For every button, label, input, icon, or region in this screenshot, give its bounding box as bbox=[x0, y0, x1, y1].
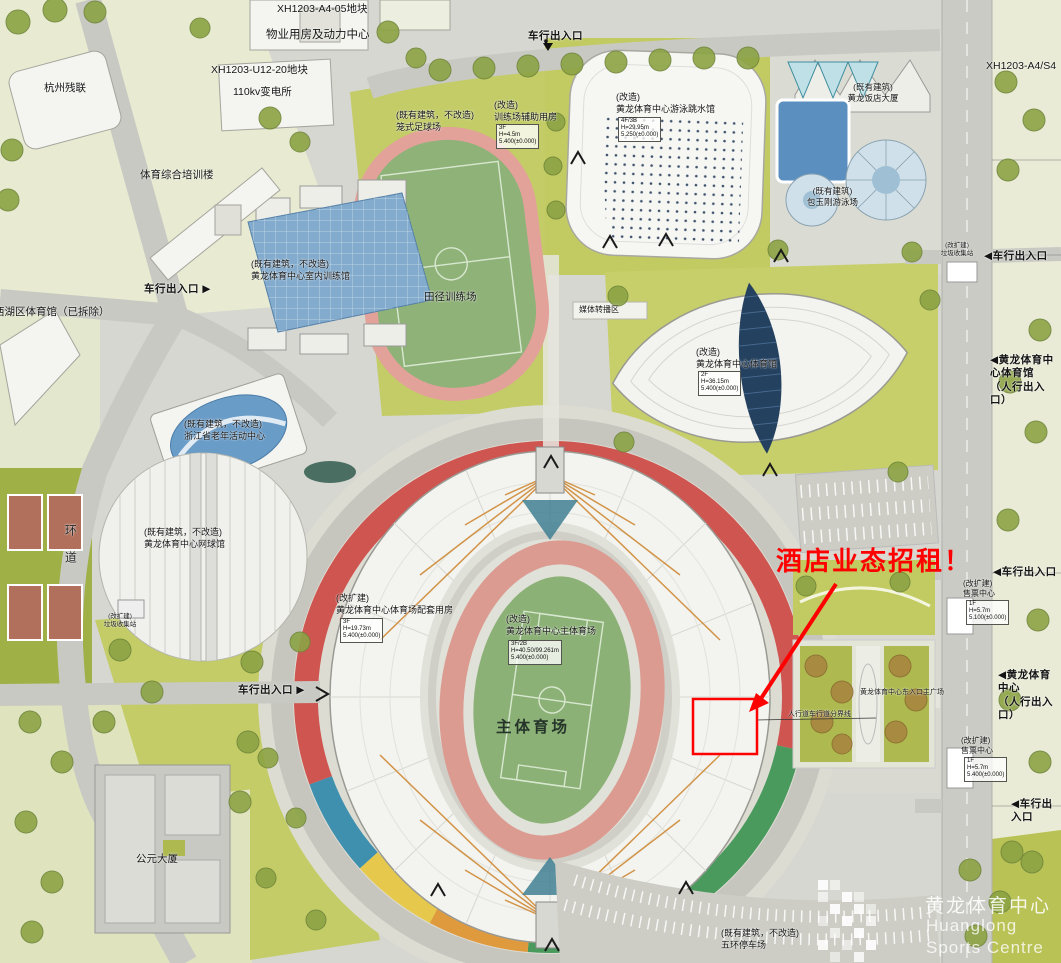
logo-title-en-2: Sports Centre bbox=[926, 938, 1044, 958]
spec-ticket-south: 1F H=5.7m 5.400(±0.000) bbox=[964, 757, 1007, 782]
entrance-vehicle-north: 车行出入口 bbox=[528, 30, 583, 43]
label-stadium-field: 主体育场 bbox=[496, 718, 570, 738]
label-garbage-east: (改扩建) 垃圾收集站 bbox=[933, 242, 981, 259]
entrance-ped-east-plaza: ◀黄龙体育中心 （人行出入口） bbox=[998, 669, 1061, 723]
label-stadium-support: (改扩建) 黄龙体育中心体育场配套用房 bbox=[336, 593, 453, 616]
plot-label-a4-s4: XH1203-A4/S4 bbox=[986, 60, 1056, 73]
label-baoyugang-pool: (既有建筑) 包玉刚游泳场 bbox=[790, 186, 875, 208]
label-ticket-north: (改扩建) 售票中心 bbox=[963, 579, 995, 599]
logo-title-cn: 黄龙体育中心 bbox=[925, 891, 1051, 918]
label-athletics-field: 田径训练场 bbox=[424, 291, 477, 304]
label-swimming-hall: (改造) 黄龙体育中心游泳跳水馆 bbox=[616, 92, 715, 115]
plot-label-u12-20: XH1203-U12-20地块 bbox=[211, 64, 308, 77]
label-hotel-tower: (既有建筑) 黄龙饭店大厦 bbox=[818, 82, 928, 104]
label-tennis-hall: (既有建筑，不改造) 黄龙体育中心网球馆 bbox=[144, 527, 225, 550]
entrance-ped-east-gym: ◀黄龙体育中心体育馆 （人行出入口） bbox=[990, 354, 1061, 408]
logo-title-en-1: Huanglong bbox=[926, 916, 1017, 936]
label-gongyuan-tower: 公元大厦 bbox=[136, 853, 178, 866]
label-boundary-note: 人行道车行道分界线 bbox=[788, 711, 851, 720]
label-xihu-gym: 西湖区体育馆（已拆除） bbox=[0, 306, 110, 319]
spec-swimming-hall: 4F/3B H=29.95m 5.250(±0.000) bbox=[618, 117, 661, 142]
label-garbage-west: (改扩建) 垃圾收集站 bbox=[96, 613, 144, 630]
label-indoor-training-hall: (既有建筑，不改造) 黄龙体育中心室内训练馆 bbox=[251, 259, 350, 282]
label-substation: 110kv变电所 bbox=[233, 86, 292, 99]
label-gymnasium: (改造) 黄龙体育中心体育馆 bbox=[696, 347, 777, 370]
label-sports-training-building: 体育综合培训楼 bbox=[140, 169, 214, 182]
site-plan-canvas: XH1203-A4-05地块 物业用房及动力中心 XH1203-U12-20地块… bbox=[0, 0, 1061, 963]
label-cage-football: (既有建筑，不改造) 笼式足球场 bbox=[396, 110, 474, 133]
entrance-vehicle-east-mid: ◀车行出入口 bbox=[993, 566, 1057, 579]
spec-training-aux: 3F H=4.5m 5.400(±0.000) bbox=[496, 124, 539, 149]
entrance-vehicle-west-mid: 车行出入口 ▶ bbox=[144, 283, 211, 296]
label-hangzhou-canlian: 杭州残联 bbox=[44, 82, 86, 95]
plot-label-a4-05: XH1203-A4-05地块 bbox=[277, 3, 367, 16]
entrance-vehicle-east-north: ◀车行出入口 bbox=[984, 250, 1048, 263]
entrance-vehicle-east-south: ◀车行出入口 bbox=[1011, 798, 1061, 825]
entrance-vehicle-west-south: 车行出入口 ▶ bbox=[238, 684, 305, 697]
label-ticket-south: (改扩建) 售票中心 bbox=[961, 736, 993, 756]
swimming-hall-shape bbox=[564, 49, 767, 261]
main-stadium-shape bbox=[330, 447, 770, 948]
spec-gymnasium: 2F H=36.15m 5.400(±0.000) bbox=[698, 371, 741, 396]
label-property-center: 物业用房及动力中心 bbox=[266, 28, 370, 43]
label-training-aux: (改造) 训练场辅助用房 bbox=[494, 100, 557, 123]
spec-main-stadium: 3F/2B H=40.50/99.261m 5.400(±0.000) bbox=[508, 640, 562, 665]
spec-ticket-north: 1F H=5.7m 5.100(±0.000) bbox=[966, 600, 1009, 625]
label-east-plaza: 黄龙体育中心东入口主广场 bbox=[860, 689, 944, 698]
label-media-zone: 媒体转播区 bbox=[579, 305, 619, 315]
label-wuhuan-parking: (既有建筑，不改造) 五环停车场 bbox=[721, 928, 799, 951]
spec-stadium-support: 3F H=19.73m 5.400(±0.000) bbox=[340, 618, 383, 643]
gongyuan-tower-shape bbox=[95, 765, 230, 933]
leasing-annotation-text: 酒店业态招租！ bbox=[776, 541, 972, 578]
label-main-stadium: (改造) 黄龙体育中心主体育场 bbox=[506, 614, 596, 637]
label-ring-road: 环道 bbox=[62, 524, 77, 624]
label-elderly-center: (既有建筑，不改造) 浙江省老年活动中心 bbox=[184, 419, 265, 442]
entrance-marker-icon: ▼ bbox=[542, 38, 550, 47]
